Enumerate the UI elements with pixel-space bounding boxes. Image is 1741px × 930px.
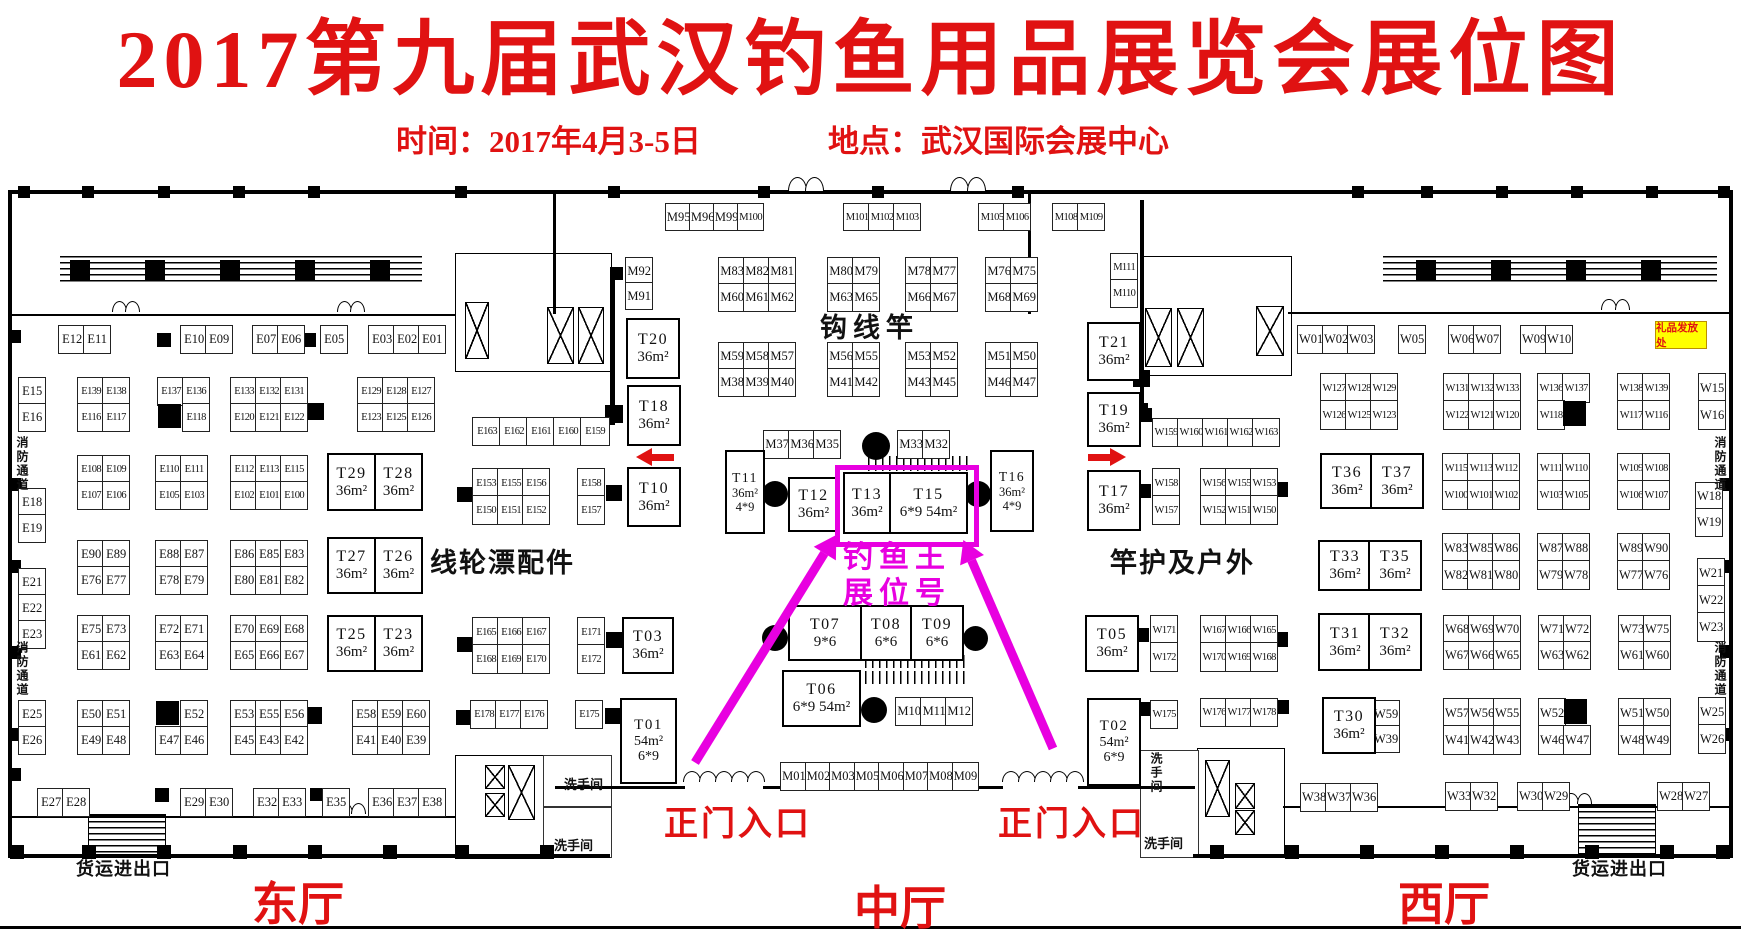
booth-cell: E89 <box>102 540 130 569</box>
label-fire-exit-l2: 消防通道 <box>14 641 31 697</box>
entrance-scallop-icon <box>1066 771 1084 782</box>
booth-cell: W21 <box>1697 558 1725 588</box>
booth-t-label: T10 <box>639 480 669 498</box>
blocked-cell <box>156 701 179 725</box>
label-fire-exit-r1: 消防通道 <box>1712 436 1729 492</box>
booth-t-label: T20 <box>638 331 668 349</box>
booth-t: T1736m² <box>1087 470 1141 531</box>
booth-cell: W171 <box>1150 615 1178 645</box>
booth-cell: W105 <box>1562 480 1590 510</box>
booth-cell: E136 <box>182 377 210 406</box>
booth-t-label: 6*9 <box>638 749 659 765</box>
column-square <box>308 186 320 198</box>
elevator-icon <box>547 307 574 364</box>
column-square <box>1421 186 1433 198</box>
booth-cell: W139 <box>1642 373 1670 403</box>
column-square <box>457 487 472 502</box>
column-square <box>1641 260 1661 280</box>
pillar-circle <box>963 626 988 651</box>
elevator-icon <box>508 765 535 820</box>
booth-t-label: T36 <box>1332 464 1362 482</box>
entrance-scallop-icon <box>747 771 765 782</box>
column-square <box>1566 260 1586 280</box>
booth-cell: M42 <box>852 368 880 397</box>
booth-cell: E62 <box>102 641 130 670</box>
booth-t: T2636m² <box>374 537 423 594</box>
booth-cell: W03 <box>1347 325 1375 354</box>
booth-t-label: 4*9 <box>1003 499 1022 513</box>
booth-cell: W110 <box>1562 453 1590 483</box>
door-arc-icon <box>967 177 986 191</box>
booth-cell: W123 <box>1370 400 1398 430</box>
booth-t: T3336m² <box>1318 540 1372 591</box>
booth-cell: W29 <box>1542 782 1570 811</box>
booth-cell: M67 <box>930 283 958 312</box>
pillar-circle <box>861 697 887 723</box>
column-square <box>307 403 324 420</box>
booth-cell: E160 <box>553 417 583 446</box>
label-entrance-left: 正门入口 <box>664 796 812 845</box>
booth-t-label: 54m² <box>634 734 663 750</box>
booth-t: T3136m² <box>1318 613 1372 671</box>
booth-cell: W65 <box>1493 641 1521 670</box>
booth-cell: E82 <box>280 566 308 595</box>
column-square <box>1510 845 1524 859</box>
booth-t-label: 36m² <box>1329 566 1360 583</box>
booth-cell: E117 <box>102 403 130 432</box>
booth-cell: W172 <box>1150 642 1178 672</box>
booth-t-label: T30 <box>1334 708 1364 726</box>
booth-cell: E06 <box>277 325 305 354</box>
booth-cell: E77 <box>102 566 130 595</box>
elevator-icon <box>485 765 505 789</box>
label-entrance-right: 正门入口 <box>998 796 1146 845</box>
blocked-cell <box>1564 699 1587 724</box>
booth-t-label: 4*9 <box>736 500 755 514</box>
booth-t: T0154m²6*9 <box>620 698 677 784</box>
door-arc-icon <box>805 177 824 191</box>
booth-t-label: 36m² <box>1329 643 1360 660</box>
booth-cell: E127 <box>407 377 435 406</box>
booth-t-label: 36m² <box>1381 482 1412 499</box>
booth-cell: E71 <box>180 615 208 644</box>
booth-cell: W120 <box>1493 400 1521 430</box>
booth-cell: E52 <box>180 700 208 729</box>
booth-cell: W168 <box>1250 642 1278 672</box>
booth-cell: M35 <box>813 430 841 459</box>
booth-t-label: 36m² <box>999 485 1025 499</box>
label-freight-west: 货运进出口 <box>1572 855 1667 881</box>
subtitle-time: 时间：2017年4月3-5日 <box>396 116 701 161</box>
booth-cell: M55 <box>852 342 880 371</box>
elevator-icon <box>1235 783 1255 809</box>
booth-cell: E60 <box>402 700 430 729</box>
booth-cell: W07 <box>1473 325 1501 354</box>
booth-t-label: 36m² <box>637 349 668 366</box>
booth-cell: M47 <box>1010 368 1038 397</box>
booth-cell: E26 <box>18 726 46 755</box>
booth-cell: E162 <box>499 417 529 446</box>
booth-t-label: 36m² <box>1379 566 1410 583</box>
elevator-icon <box>485 793 505 817</box>
booth-cell: E159 <box>580 417 610 446</box>
hall-label-west: 西厅 <box>1398 868 1490 930</box>
booth-cell: E152 <box>522 495 550 525</box>
red-arrow-icon-head <box>1110 448 1126 466</box>
booth-cell: W163 <box>1252 418 1280 447</box>
booth-cell: E109 <box>102 455 130 484</box>
booth-t-label: T01 <box>634 717 663 734</box>
column-square <box>1416 260 1436 280</box>
column-square <box>155 788 169 802</box>
booth-t-label: 36m² <box>1379 643 1410 660</box>
column-square <box>457 637 472 652</box>
booth-cell: W27 <box>1682 782 1710 811</box>
booth-cell: E35 <box>322 788 350 817</box>
booth-cell: W55 <box>1493 698 1521 728</box>
booth-cell: W90 <box>1642 533 1670 563</box>
column-square <box>1571 186 1583 198</box>
booth-cell: W178 <box>1250 698 1278 727</box>
booth-cell: E118 <box>182 403 210 432</box>
booth-cell: E172 <box>577 644 605 674</box>
booth-cell: W88 <box>1562 533 1590 563</box>
column-square <box>18 186 30 198</box>
label-fire-exit-l1: 消防通道 <box>14 436 31 492</box>
booth-t-label: T12 <box>798 487 828 505</box>
booth-cell: M75 <box>1010 257 1038 286</box>
booth-t-label: 36m² <box>1333 726 1364 743</box>
booth-t: T0536m² <box>1085 615 1139 672</box>
booth-t-label: 36m² <box>1096 644 1127 661</box>
booth-cell: W112 <box>1492 453 1520 483</box>
booth-cell: E157 <box>577 495 605 525</box>
booth-cell: E170 <box>522 644 550 674</box>
booth-t-label: T16 <box>999 469 1025 484</box>
label-rod-outdoor: 竿护及户外 <box>1110 541 1255 580</box>
column-square <box>758 186 770 198</box>
label-hook-line-rod: 钩线竿 <box>820 306 919 345</box>
booth-t-label: T11 <box>732 470 758 485</box>
label-washroom-e1: 洗手间 <box>564 774 603 793</box>
booth-t-label: T08 <box>871 616 901 634</box>
stripe-band <box>88 814 166 858</box>
column-square <box>158 186 170 198</box>
booth-t-label: 36m² <box>383 644 414 661</box>
booth-cell: M50 <box>1010 342 1038 371</box>
booth-cell: E163 <box>472 417 502 446</box>
booth-cell: E28 <box>62 788 90 817</box>
blocked-cell <box>1563 401 1586 426</box>
booth-cell: E48 <box>102 726 130 755</box>
booth-t-label: T17 <box>1099 483 1129 501</box>
column-square <box>1718 186 1730 198</box>
booth-t-label: T29 <box>336 465 366 483</box>
booth-cell: E56 <box>280 700 308 729</box>
booth-t-label: T33 <box>1330 548 1360 566</box>
column-square <box>1210 845 1224 859</box>
booth-cell: W72 <box>1563 615 1591 644</box>
booth-cell: E175 <box>575 700 603 729</box>
booth-cell: W70 <box>1493 615 1521 644</box>
door-arc-icon <box>1615 299 1631 310</box>
booth-t-label: T05 <box>1097 626 1127 644</box>
booth-cell: W19 <box>1695 508 1723 537</box>
booth-t-label: 54m² <box>1099 735 1128 751</box>
booth-t-label: 6*9 54m² <box>793 699 850 716</box>
booth-cell: E67 <box>280 641 308 670</box>
booth-t: T2036m² <box>626 318 680 379</box>
booth-cell: W62 <box>1563 641 1591 670</box>
booth-cell: E87 <box>180 540 208 569</box>
wall <box>1140 200 1144 422</box>
booth-t: T2136m² <box>1087 322 1141 381</box>
column-square <box>1012 186 1024 198</box>
label-washroom-e2: 洗手间 <box>554 835 593 854</box>
booth-cell: M79 <box>852 257 880 286</box>
elevator-icon <box>1177 308 1204 367</box>
booth-cell: M69 <box>1010 283 1038 312</box>
booth-cell: W36 <box>1350 783 1378 812</box>
booth-cell: E64 <box>180 641 208 670</box>
red-arrow-icon-head <box>636 448 652 466</box>
column-square <box>540 845 554 859</box>
booth-cell: E103 <box>180 481 208 510</box>
door-arc-icon <box>351 803 367 814</box>
booth-t: T1036m² <box>627 467 681 527</box>
booth-cell: E05 <box>320 325 348 354</box>
booth-t-label: T07 <box>810 616 840 634</box>
booth-t-label: T03 <box>633 628 663 646</box>
column-square <box>1491 260 1511 280</box>
booth-cell: E19 <box>18 514 46 543</box>
booth-cell: W75 <box>1643 615 1671 644</box>
door-arc-icon <box>350 301 365 312</box>
booth-cell: W49 <box>1643 725 1671 755</box>
booth-t-label: T23 <box>383 626 413 644</box>
booth-t-label: T32 <box>1380 625 1410 643</box>
booth-t-label: 36m² <box>1331 482 1362 499</box>
column-square <box>383 845 397 859</box>
booth-cell: W158 <box>1152 468 1180 498</box>
wall <box>8 190 12 858</box>
booth-cell: E106 <box>102 481 130 510</box>
booth-t-label: T35 <box>1380 548 1410 566</box>
booth-t-label: T19 <box>1099 402 1129 420</box>
booth-cell: M81 <box>768 257 796 286</box>
booth-cell: E25 <box>18 700 46 729</box>
booth-t-label: 36m² <box>1098 501 1129 518</box>
booth-t: T3036m² <box>1322 697 1376 754</box>
label-washroom-w2: 洗手间 <box>1144 833 1183 852</box>
label-reel-float: 线轮漂配件 <box>430 541 575 580</box>
booth-t: T066*9 54m² <box>782 670 861 727</box>
elevator-icon <box>1145 308 1172 367</box>
elevator-icon <box>465 302 489 359</box>
column-square <box>370 260 390 280</box>
booth-t-label: T31 <box>1330 625 1360 643</box>
booth-t-label: T28 <box>383 465 413 483</box>
booth-t: T079*6 <box>788 605 862 661</box>
booth-t-label: 36m² <box>383 483 414 500</box>
booth-t: T2336m² <box>374 615 423 672</box>
booth-t: T2836m² <box>374 453 423 511</box>
booth-t-label: T09 <box>922 616 952 634</box>
booth-t: T3636m² <box>1320 453 1374 509</box>
booth-cell: W150 <box>1250 495 1278 525</box>
booth-cell: W43 <box>1493 725 1521 755</box>
booth-t-label: 36m² <box>638 416 669 433</box>
booth-cell: W175 <box>1150 700 1178 729</box>
booth-cell: E126 <box>407 403 435 432</box>
page-title: 2017第九届武汉钓鱼用品展览会展位图 <box>0 0 1741 111</box>
booth-t-label: 36m² <box>1098 420 1129 437</box>
wall <box>553 190 556 314</box>
elevator-icon <box>1235 810 1255 835</box>
booth-cell: E158 <box>577 468 605 498</box>
column-square <box>455 186 467 198</box>
column-square <box>295 260 315 280</box>
booth-cell: E30 <box>205 788 233 817</box>
booth-cell: W86 <box>1492 533 1520 563</box>
booth-t: T3236m² <box>1368 613 1422 671</box>
booth-t-label: T21 <box>1099 334 1129 352</box>
column-square <box>8 768 21 781</box>
booth-cell: W153 <box>1250 468 1278 498</box>
booth-t: T1136m²4*9 <box>725 450 765 534</box>
wall <box>8 314 455 316</box>
booth-cell: M62 <box>768 283 796 312</box>
booth-cell: E22 <box>18 594 46 623</box>
booth-cell: M106 <box>1003 203 1031 231</box>
column-square <box>10 845 24 859</box>
booth-t: T1636m²4*9 <box>990 450 1034 532</box>
booth-cell: E161 <box>526 417 556 446</box>
booth-t: T0336m² <box>622 617 674 674</box>
booth-cell: M109 <box>1077 203 1105 231</box>
wall <box>610 270 615 425</box>
booth-t-label: 36m² <box>638 498 669 515</box>
booth-cell: M12 <box>945 697 973 726</box>
booth-t-label: 6*6 <box>875 634 898 651</box>
door-arc-icon <box>1577 793 1593 804</box>
booth-t-label: T26 <box>383 548 413 566</box>
booth-cell: E18 <box>18 488 46 517</box>
booth-cell: E83 <box>280 540 308 569</box>
wall <box>8 190 1733 194</box>
booth-cell: W133 <box>1493 373 1521 403</box>
booth-cell: E46 <box>180 726 208 755</box>
booth-cell: E167 <box>522 617 550 647</box>
booth-cell: E79 <box>180 566 208 595</box>
booth-cell: W116 <box>1642 400 1670 430</box>
booth-cell: E39 <box>402 726 430 755</box>
booth-cell: E171 <box>577 617 605 647</box>
column-square <box>233 186 245 198</box>
booth-t-label: 9*6 <box>814 634 837 651</box>
booth-t-label: T06 <box>806 681 836 699</box>
booth-t: T2536m² <box>327 615 376 672</box>
column-square <box>606 485 622 501</box>
booth-t-label: T37 <box>1382 464 1412 482</box>
booth-t: T1836m² <box>627 385 681 446</box>
booth-cell: E11 <box>83 325 111 354</box>
booth-t: T0254m²6*9 <box>1087 698 1141 786</box>
booth-t-label: 36m² <box>336 566 367 583</box>
door-arc-icon <box>125 301 140 312</box>
booth-t-label: 36m² <box>383 566 414 583</box>
elevator-icon <box>1205 760 1230 817</box>
booth-cell: W107 <box>1642 480 1670 510</box>
booth-cell: W80 <box>1492 560 1520 590</box>
booth-t-label: T27 <box>336 548 366 566</box>
booth-t-label: 6*6 <box>926 634 949 651</box>
column-square <box>1435 845 1449 859</box>
booth-cell: W47 <box>1563 725 1591 755</box>
booth-cell: E176 <box>520 700 548 729</box>
booth-cell: M77 <box>930 257 958 286</box>
column-square <box>233 845 247 859</box>
booth-t-label: 36m² <box>732 486 758 500</box>
booth-cell: E111 <box>180 455 208 484</box>
wall <box>1078 786 1195 789</box>
booth-cell: W76 <box>1642 560 1670 590</box>
column-square <box>1285 845 1299 859</box>
subtitle-venue: 地点：武汉国际会展中心 <box>828 116 1169 161</box>
column-square <box>606 632 622 648</box>
highlight-arrow-icon <box>968 558 1058 749</box>
booth-cell: E122 <box>280 403 308 432</box>
booth-t: T3736m² <box>1370 453 1424 509</box>
booth-cell: W26 <box>1698 724 1726 754</box>
column-square <box>145 260 165 280</box>
booth-cell: E131 <box>280 377 308 406</box>
column-square <box>608 186 620 198</box>
booth-cell: W15 <box>1698 373 1726 403</box>
pillar-circle <box>762 481 788 507</box>
column-square <box>82 186 94 198</box>
label-washroom-w1: 洗手间 <box>1148 752 1165 794</box>
booth-cell: E73 <box>102 615 130 644</box>
booth-cell: E68 <box>280 615 308 644</box>
booth-t: T096*6 <box>910 605 964 661</box>
booth-t-label: T02 <box>1100 718 1129 735</box>
booth-cell: M100 <box>737 203 764 231</box>
booth-t-label: 6*9 <box>1104 750 1125 766</box>
booth-cell: E15 <box>18 377 46 406</box>
booth-cell: W157 <box>1152 495 1180 525</box>
elevator-icon <box>1256 306 1284 356</box>
column-square <box>157 333 171 347</box>
booth-cell: E16 <box>18 403 46 432</box>
booth-cell: W32 <box>1470 782 1498 811</box>
booth-cell: W16 <box>1698 400 1726 430</box>
wall <box>1288 312 1730 314</box>
booth-cell: E100 <box>280 481 308 510</box>
booth-t-label: T25 <box>336 626 366 644</box>
booth-cell: W23 <box>1697 612 1725 642</box>
red-arrow-icon <box>652 454 674 461</box>
booth-t-label: 36m² <box>1098 352 1129 369</box>
booth-cell: E09 <box>205 325 233 354</box>
column-square <box>1352 186 1364 198</box>
booth-cell: W78 <box>1562 560 1590 590</box>
stripe-band <box>865 671 965 684</box>
hall-label-east: 东厅 <box>252 868 344 930</box>
column-square <box>872 186 884 198</box>
booth-cell: W129 <box>1370 373 1398 403</box>
red-arrow-icon <box>1088 454 1110 461</box>
